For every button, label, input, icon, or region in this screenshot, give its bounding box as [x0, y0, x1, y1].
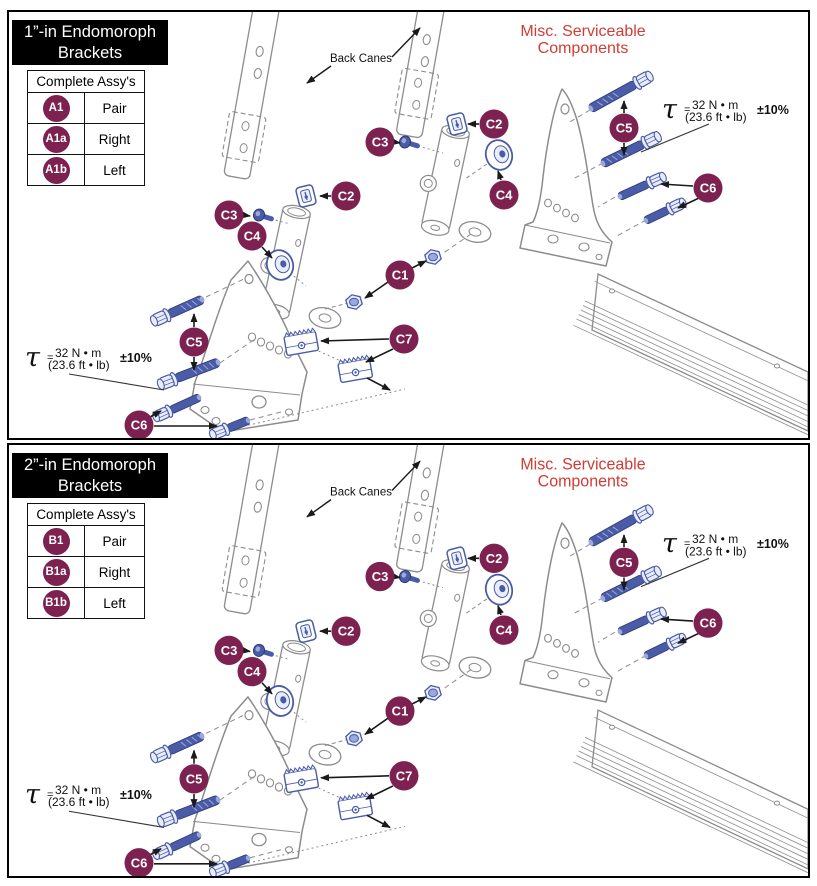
- back-cane-right: [391, 12, 451, 139]
- svg-text:C6: C6: [700, 181, 717, 196]
- washer-c4-1: [482, 571, 516, 608]
- assy-badge: B1: [43, 528, 70, 555]
- torque-spec-left: τ=32 N • m(23.6 ft • lb)±10%: [25, 779, 164, 827]
- svg-text:(23.6 ft • lb): (23.6 ft • lb): [48, 795, 110, 809]
- mounting-rail: [573, 274, 808, 435]
- bracket-right: [520, 89, 612, 266]
- svg-text:Misc. Serviceable: Misc. Serviceable: [520, 23, 645, 40]
- svg-text:C4: C4: [496, 623, 513, 638]
- complete-assys-table: Complete Assy's B1 Pair B1a Right B1b Le…: [27, 503, 145, 619]
- callout-c7: C7: [321, 325, 419, 391]
- callout-c4: C4: [490, 606, 519, 645]
- assy-badge: B1b: [43, 590, 70, 617]
- svg-text:Back Canes: Back Canes: [330, 487, 392, 499]
- back-canes-label-group: Back Canes: [307, 28, 420, 83]
- panel-2in-brackets: C1C2C2C3C3C4C4C5C5C6C6C7Back CanesMisc. …: [7, 443, 810, 878]
- bolt-c5-left-1: [148, 292, 207, 328]
- svg-text:C7: C7: [396, 768, 413, 783]
- assy-row: A1 Pair: [28, 93, 145, 124]
- panel-1in-brackets: C1C2C2C3C3C4C4C5C5C6C6C7Back CanesMisc. …: [7, 10, 810, 440]
- mounting-rail: [573, 710, 808, 873]
- assy-table-header: Complete Assy's: [28, 504, 145, 526]
- assy-row: B1b Left: [28, 588, 145, 619]
- svg-text:τ: τ: [25, 779, 41, 810]
- clamp-nut-c2-2: [295, 619, 316, 643]
- clamp-nut-c2-1: [446, 112, 467, 136]
- clamp-nut-c2-2: [295, 184, 316, 208]
- torque-spec-right: τ=32 N • m(23.6 ft • lb)±10%: [641, 528, 789, 587]
- assy-table-header: Complete Assy's: [28, 71, 145, 93]
- misc-serviceable-label: Misc. ServiceableComponents: [520, 455, 645, 490]
- assy-label: Right: [85, 124, 145, 155]
- back-cane-right: [391, 445, 451, 574]
- svg-text:±10%: ±10%: [757, 537, 789, 551]
- svg-text:τ: τ: [662, 94, 678, 125]
- svg-text:±10%: ±10%: [120, 351, 152, 365]
- callout-c7: C7: [321, 761, 419, 827]
- svg-text:C2: C2: [486, 117, 503, 132]
- panel-title: 2”-in Endomoroph Brackets: [12, 453, 168, 498]
- assy-row: A1b Left: [28, 155, 145, 186]
- svg-text:C4: C4: [244, 664, 261, 679]
- svg-text:τ: τ: [662, 528, 678, 559]
- bolt-c6-right-1: [615, 170, 668, 204]
- svg-text:C5: C5: [616, 121, 633, 136]
- svg-text:C2: C2: [338, 189, 355, 204]
- panel-title: 1”-in Endomoroph Brackets: [12, 20, 168, 65]
- bolt-c5-right-1: [586, 69, 656, 116]
- callout-c4: C4: [238, 657, 273, 694]
- assy-badge: B1a: [43, 559, 70, 586]
- svg-text:Misc. Serviceable: Misc. Serviceable: [520, 455, 645, 473]
- svg-text:C3: C3: [372, 135, 389, 150]
- callout-c1: C1: [365, 261, 426, 299]
- misc-serviceable-label: Misc. ServiceableComponents: [520, 23, 645, 57]
- assy-badge: A1b: [43, 157, 70, 184]
- back-canes-label-group: Back Canes: [307, 461, 420, 517]
- torque-spec-right: τ=32 N • m(23.6 ft • lb)±10%: [641, 94, 789, 152]
- panel-title-line2: Brackets: [58, 477, 122, 495]
- svg-text:±10%: ±10%: [120, 788, 152, 802]
- svg-text:C3: C3: [221, 643, 238, 658]
- svg-text:C5: C5: [616, 555, 633, 570]
- line-art: [190, 445, 808, 873]
- assy-label: Pair: [85, 93, 145, 124]
- svg-text:±10%: ±10%: [757, 103, 789, 117]
- washer-c4-1: [482, 137, 516, 174]
- back-cane-left: [219, 12, 286, 181]
- svg-text:C2: C2: [486, 551, 503, 566]
- assy-label: Left: [85, 588, 145, 619]
- svg-text:C4: C4: [496, 188, 513, 203]
- panel-title-line1: 2”-in Endomoroph: [24, 456, 156, 474]
- svg-text:Back Canes: Back Canes: [330, 53, 392, 65]
- svg-text:(23.6 ft • lb): (23.6 ft • lb): [48, 358, 110, 372]
- svg-text:Components: Components: [538, 472, 629, 490]
- clamp-nut-c2-1: [446, 546, 467, 570]
- svg-text:(23.6 ft • lb): (23.6 ft • lb): [685, 110, 747, 124]
- callout-c1: C1: [365, 696, 426, 734]
- bolt-c6-right-2: [641, 196, 688, 228]
- callout-c3: C3: [366, 128, 401, 157]
- svg-text:(23.6 ft • lb): (23.6 ft • lb): [685, 544, 747, 558]
- bolt-c6-right-1: [615, 605, 668, 639]
- callout-c2: C2: [320, 616, 361, 645]
- exploded-parts-diagram-page: C1C2C2C3C3C4C4C5C5C6C6C7Back CanesMisc. …: [0, 0, 817, 886]
- assy-row: A1a Right: [28, 124, 145, 155]
- nut-c1-1: [425, 686, 441, 701]
- callout-c3: C3: [366, 562, 401, 591]
- pivot-drum-right: [457, 219, 492, 245]
- svg-text:C2: C2: [338, 624, 355, 639]
- svg-text:C4: C4: [244, 229, 261, 244]
- callout-c2: C2: [468, 544, 509, 573]
- svg-text:Components: Components: [538, 40, 629, 57]
- panel-title-line2: Brackets: [58, 44, 122, 62]
- assy-row: B1 Pair: [28, 526, 145, 557]
- callout-c4: C4: [238, 222, 273, 259]
- panel-title-line1: 1”-in Endomoroph: [24, 23, 156, 41]
- svg-text:C1: C1: [392, 704, 409, 719]
- bolt-c5-left-1: [148, 728, 207, 765]
- line-art: [190, 12, 808, 435]
- bolt-c5-right-1: [586, 502, 656, 550]
- svg-text:C5: C5: [186, 335, 203, 350]
- pivot-drum-right: [457, 654, 492, 681]
- svg-text:C6: C6: [131, 418, 148, 433]
- complete-assys-table: Complete Assy's A1 Pair A1a Right A1b Le…: [27, 70, 145, 186]
- callout-c2: C2: [320, 182, 361, 211]
- assy-badge: A1a: [43, 126, 70, 153]
- svg-text:C7: C7: [396, 332, 413, 347]
- bolt-c6-right-2: [641, 631, 688, 663]
- svg-text:C1: C1: [392, 268, 409, 283]
- svg-text:C6: C6: [700, 616, 717, 631]
- torque-spec-left: τ=32 N • m(23.6 ft • lb)±10%: [25, 342, 164, 390]
- nut-c1-2: [346, 731, 362, 746]
- nut-c1-2: [346, 295, 362, 309]
- cane-socket-right: [410, 121, 470, 237]
- svg-text:C3: C3: [372, 569, 389, 584]
- svg-text:C5: C5: [186, 771, 203, 786]
- callout-c4: C4: [490, 171, 519, 210]
- nut-c1-1: [425, 250, 441, 264]
- assy-label: Right: [85, 557, 145, 588]
- assy-badge: A1: [43, 95, 70, 122]
- assy-label: Pair: [85, 526, 145, 557]
- svg-text:C6: C6: [131, 855, 148, 870]
- bracket-right: [520, 523, 612, 702]
- back-cane-left: [219, 445, 286, 616]
- svg-text:τ: τ: [25, 342, 41, 373]
- cane-socket-right: [410, 555, 470, 673]
- assy-row: B1a Right: [28, 557, 145, 588]
- callout-c2: C2: [468, 110, 509, 139]
- svg-text:C3: C3: [221, 208, 238, 223]
- assy-label: Left: [85, 155, 145, 186]
